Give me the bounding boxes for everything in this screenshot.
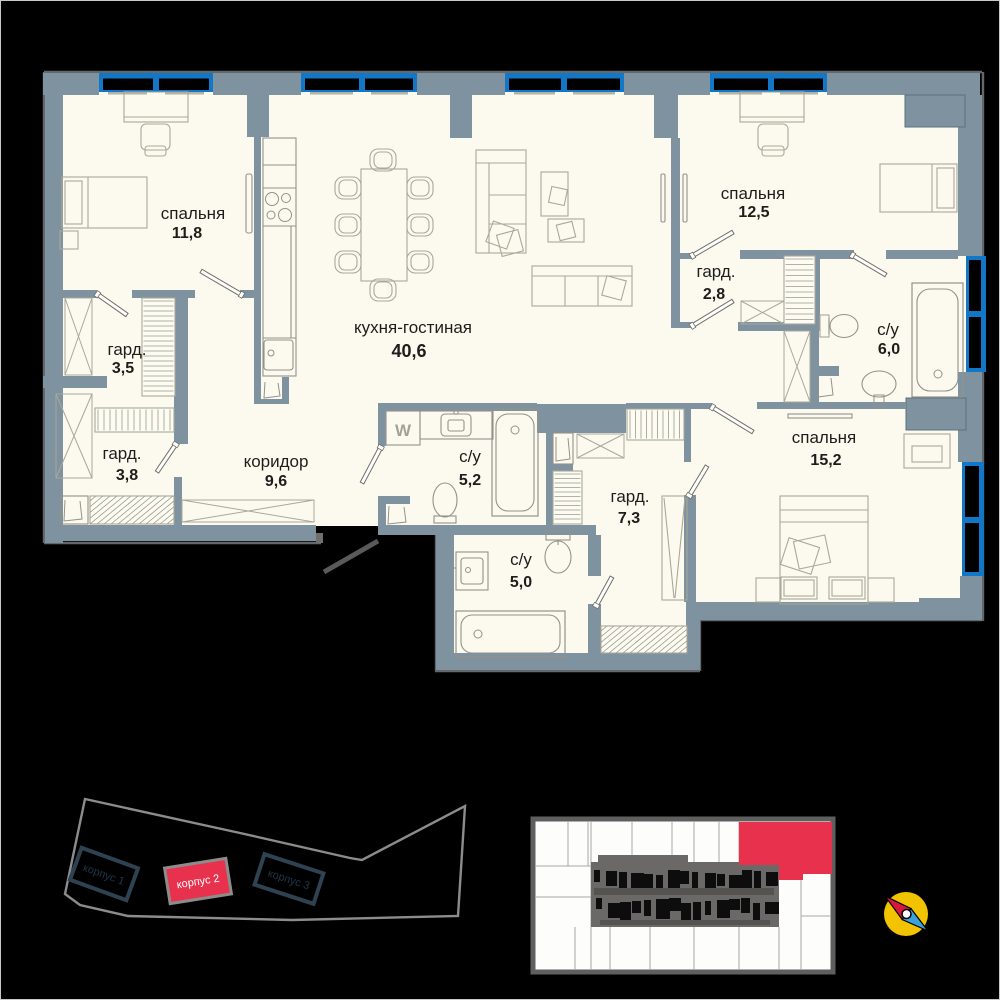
svg-text:12,5: 12,5 xyxy=(738,204,769,221)
svg-text:спальня: спальня xyxy=(721,184,786,203)
svg-text:3,5: 3,5 xyxy=(112,360,134,377)
svg-text:гард.: гард. xyxy=(108,340,147,359)
svg-text:5,2: 5,2 xyxy=(459,472,481,489)
svg-text:коридор: коридор xyxy=(244,452,309,471)
svg-text:3,8: 3,8 xyxy=(116,467,138,484)
svg-text:с/у: с/у xyxy=(510,550,532,569)
svg-text:спальня: спальня xyxy=(792,428,857,447)
svg-text:с/у: с/у xyxy=(459,447,481,466)
svg-text:6,0: 6,0 xyxy=(878,341,900,358)
svg-text:спальня: спальня xyxy=(161,204,226,223)
svg-text:W: W xyxy=(395,421,412,440)
svg-text:7,3: 7,3 xyxy=(618,510,640,527)
svg-text:гард.: гард. xyxy=(103,444,142,463)
svg-text:15,2: 15,2 xyxy=(810,452,841,469)
svg-text:гард.: гард. xyxy=(611,487,650,506)
svg-text:с/у: с/у xyxy=(877,320,899,339)
svg-text:40,6: 40,6 xyxy=(391,341,426,361)
svg-text:9,6: 9,6 xyxy=(265,473,287,490)
svg-text:5,0: 5,0 xyxy=(510,574,532,591)
svg-text:гард.: гард. xyxy=(697,262,736,281)
svg-text:11,8: 11,8 xyxy=(172,225,202,242)
svg-text:кухня-гостиная: кухня-гостиная xyxy=(354,318,472,337)
svg-text:2,8: 2,8 xyxy=(703,286,725,303)
